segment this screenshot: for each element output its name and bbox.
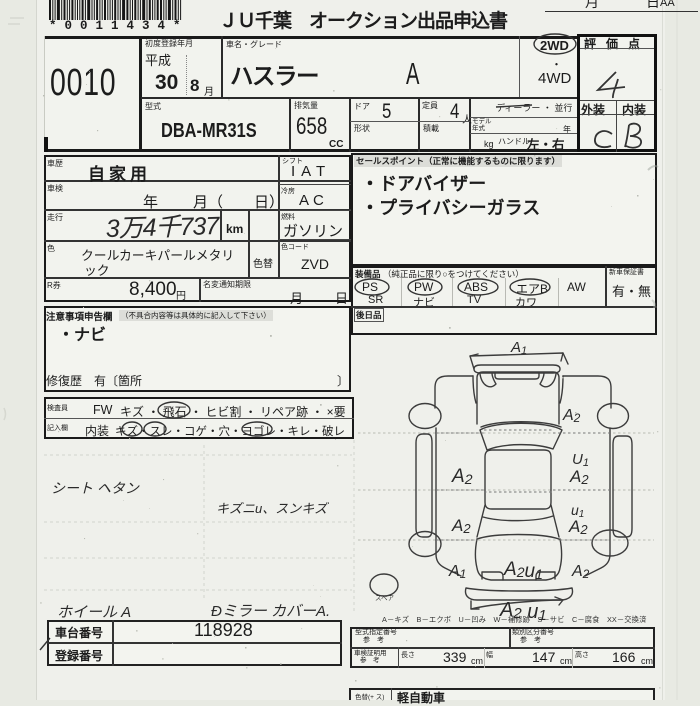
svg-text:スペア: スペア <box>375 594 395 602</box>
svg-text:A2: A2 <box>451 466 473 487</box>
svg-text:A2: A2 <box>571 563 590 581</box>
svg-text:キズニu、スンキズ: キズニu、スンキズ <box>216 501 329 516</box>
svg-text:A2: A2 <box>569 467 589 487</box>
svg-text:A2u1: A2u1 <box>503 559 543 582</box>
svg-text:A1: A1 <box>448 563 466 581</box>
svg-text:A2: A2 <box>562 407 581 425</box>
svg-text:A1: A1 <box>510 339 527 357</box>
svg-text:A2 u1: A2 u1 <box>499 599 547 624</box>
svg-text:ホイール A: ホイール A <box>57 604 131 621</box>
svg-text:3万4千737: 3万4千737 <box>105 212 220 243</box>
svg-text:A2: A2 <box>568 517 588 537</box>
svg-text:Ðミラー カバーA.: Ðミラー カバーA. <box>211 603 330 620</box>
svg-text:A2: A2 <box>451 516 471 536</box>
svg-text:シート ヘタン: シート ヘタン <box>51 480 140 496</box>
